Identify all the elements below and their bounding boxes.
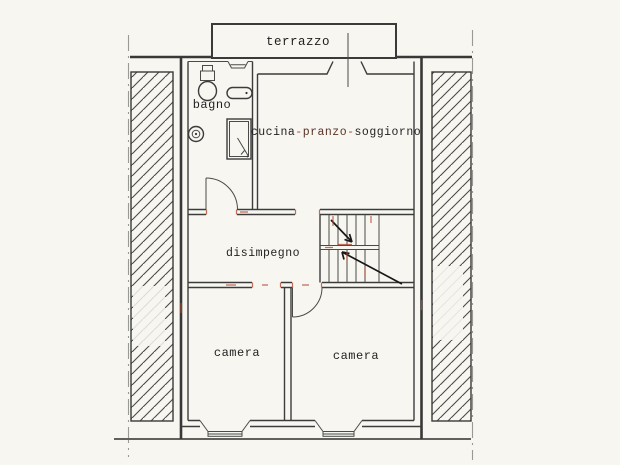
neighbor-hatch-left [131,72,173,421]
hallway-label: disimpegno [226,247,300,260]
bathroom-label: bagno [193,98,232,112]
bedroom-right-label: camera [333,349,379,363]
living-label-cucina: cucina [251,126,295,139]
scan-fade-patch [433,266,463,340]
living-label-dash: - [347,126,354,139]
floor-plan: terrazzo [0,0,620,465]
living-label-pranzo: pranzo [303,126,347,139]
scan-fade-patch [133,286,165,346]
terrace-label: terrazzo [266,35,330,49]
floor-plan-scan: terrazzo [0,0,620,465]
scan-background [0,0,620,465]
neighbor-hatch-right [432,72,471,421]
living-label-soggiorno: soggiorno [355,126,422,139]
bedroom-left-label: camera [214,346,260,360]
living-room-label: cucina-pranzo-soggiorno [251,126,421,139]
living-label-dash: - [295,126,302,139]
